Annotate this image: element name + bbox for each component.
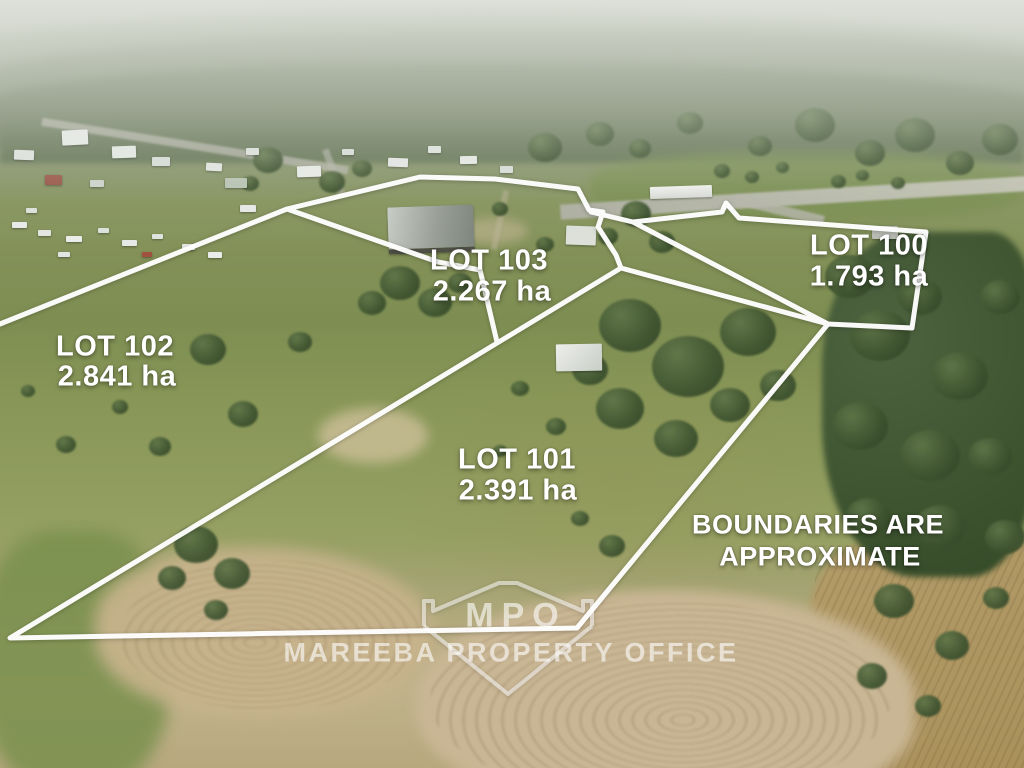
- watermark-brand: MAREEBA PROPERTY OFFICE: [283, 638, 738, 669]
- lot103-area: 2.267 ha: [433, 276, 551, 309]
- watermark-initials: MPO: [457, 597, 566, 636]
- disclaimer-line2: APPROXIMATE: [719, 542, 921, 573]
- boundary-south: [10, 268, 828, 638]
- aerial-photo: LOT 100 1.793 ha LOT 101 2.391 ha LOT 10…: [0, 0, 1024, 768]
- lot101-label: LOT 101: [458, 444, 576, 477]
- disclaimer-line1: BOUNDARIES ARE: [692, 510, 944, 541]
- lot102-label: LOT 102: [56, 331, 174, 364]
- boundary-connector: [591, 212, 633, 222]
- lot101-area: 2.391 ha: [459, 475, 577, 508]
- lot103-label: LOT 103: [430, 245, 548, 278]
- lot100-area: 1.793 ha: [810, 261, 928, 294]
- lot100-label: LOT 100: [810, 230, 928, 263]
- lot102-area: 2.841 ha: [58, 361, 176, 394]
- boundary-lot101-north: [621, 268, 828, 324]
